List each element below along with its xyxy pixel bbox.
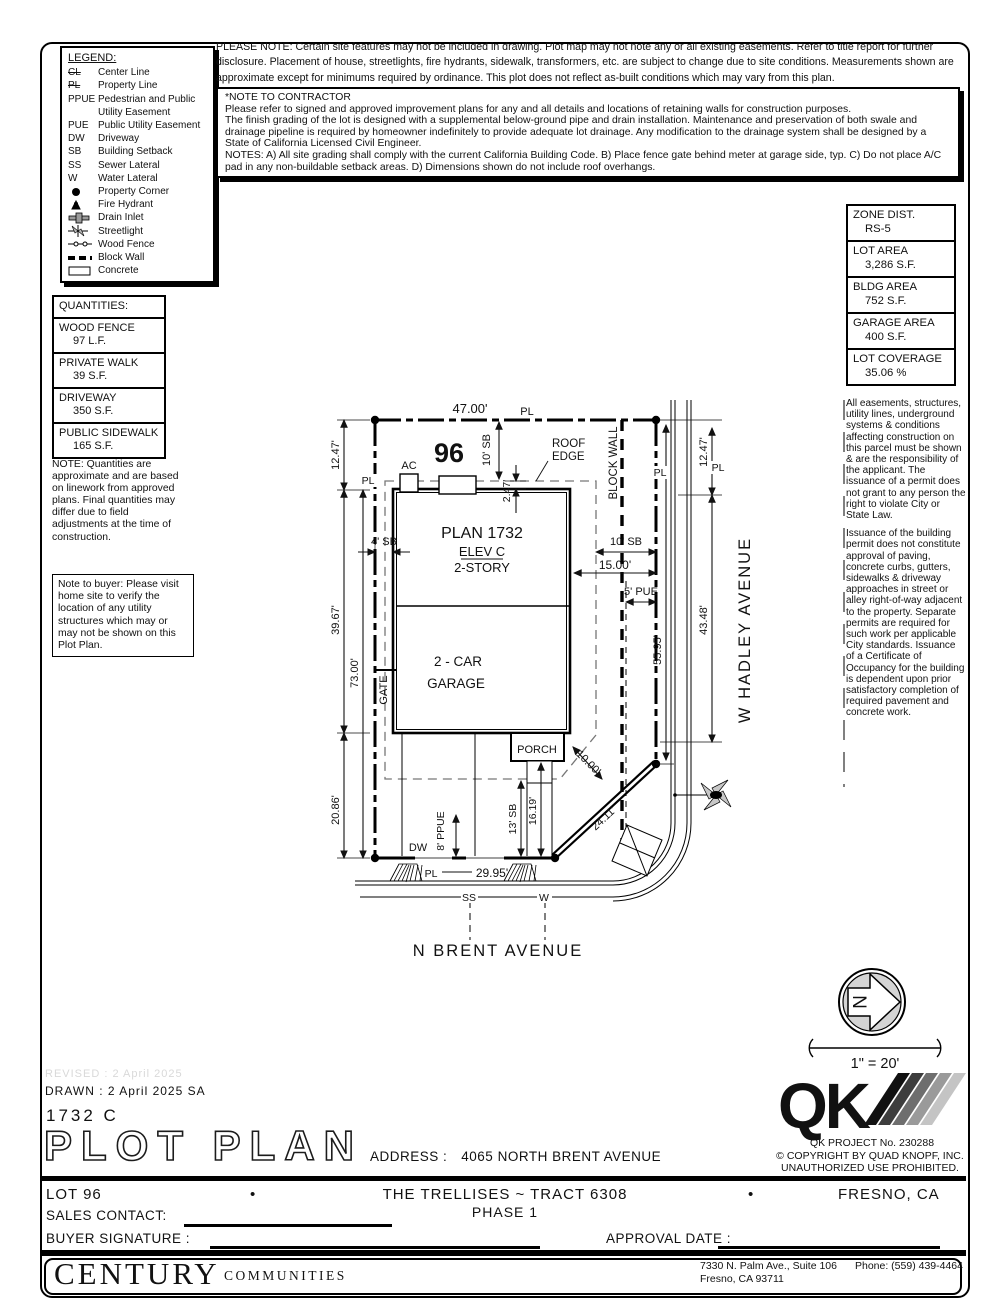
dim-right-5595: 55.95' [652, 635, 664, 665]
contractor-note-body1: Please refer to signed and approved impr… [225, 104, 951, 116]
legend-row: Block Wall [68, 251, 208, 264]
legend-row: CLCenter Line [68, 66, 208, 79]
lot-label: LOT 96 [46, 1186, 102, 1203]
drain-inlet-symbol [612, 825, 662, 876]
footer-address1: 7330 N. Palm Ave., Suite 106 [700, 1260, 837, 1272]
streetlight-symbol [673, 780, 731, 810]
lot-area-box: LOT AREA3,286 S.F. [846, 240, 956, 278]
roof-edge-label: ROOF [552, 438, 585, 450]
approval-date-label: APPROVAL DATE : [606, 1231, 731, 1246]
curb-ramp [504, 864, 536, 882]
propertyline-symbol: PL [68, 79, 98, 92]
quantities-table: QUANTITIES: WOOD FENCE97 L.F. PRIVATE WA… [52, 297, 166, 459]
scale-bar [809, 1039, 941, 1057]
buyer-signature-label: BUYER SIGNATURE : [46, 1231, 190, 1246]
sewer-lateral-label: SS [462, 892, 476, 904]
north-arrow: N 1" = 20' [804, 956, 946, 1074]
contractor-note-body2: The finish grading of the lot is designe… [225, 115, 951, 150]
legend-row: Wood Fence [68, 238, 208, 251]
quantity-row: PRIVATE WALK39 S.F. [52, 352, 166, 389]
dim-side-setback-left: 4' SB [371, 536, 397, 548]
legend-box: LEGEND: CLCenter Line PLProperty Line PP… [60, 46, 215, 283]
gate-label: GATE [378, 675, 390, 704]
dim-left-3967: 39.67' [330, 605, 342, 635]
dw-label: DW [409, 842, 428, 854]
dim-pue: 5' PUE [624, 586, 658, 598]
sheet-title: PLOT PLAN [44, 1122, 363, 1170]
revised-date: REVISED : 2 April 2025 [45, 1068, 183, 1080]
bldg-area-box: BLDG AREA752 S.F. [846, 276, 956, 314]
legend-row: Concrete [68, 264, 208, 277]
story-label: 2-STORY [454, 560, 510, 575]
zone-dist-box: ZONE DIST.RS-5 [846, 204, 956, 242]
dim-ppue: 8' PPUE [435, 811, 447, 850]
porch-label: PORCH [517, 744, 557, 756]
pl-label: PL [425, 868, 438, 880]
footer-address2: Fresno, CA 93711 [700, 1273, 981, 1286]
dim-left-73: 73.00' [349, 658, 361, 688]
contractor-note-box: *NOTE TO CONTRACTOR Please refer to sign… [216, 87, 960, 178]
legend-row: DWDriveway [68, 132, 208, 145]
north-letter: N [848, 995, 869, 1009]
block-wall-label: BLOCK WALL [608, 426, 620, 500]
qk-project-number: QK PROJECT No. 230288 [810, 1137, 934, 1149]
qk-stripes [864, 1073, 966, 1125]
centerline-symbol: CL [68, 66, 98, 79]
contractor-note-body3: NOTES: A) All site grading shall comply … [225, 150, 951, 173]
buyer-signature-line[interactable] [210, 1246, 540, 1249]
lot-coverage-box: LOT COVERAGE35.06 % [846, 348, 956, 386]
pl-label: PL [362, 475, 375, 487]
dim-lot-width: 47.00' [452, 401, 487, 416]
qk-unauthorized: UNAUTHORIZED USE PROHIBITED. [781, 1162, 959, 1174]
lot-number: 96 [434, 438, 464, 468]
pl-label: PL [520, 406, 533, 418]
separator-bullet: • [250, 1186, 256, 1203]
buyer-note-box: Note to buyer: Please visit home site to… [52, 574, 194, 657]
pl-label: PL [654, 467, 667, 479]
pl-label: PL [712, 462, 725, 474]
dim-left-2086: 20.86' [330, 795, 342, 825]
legend-row: PLProperty Line [68, 79, 208, 92]
footer-phone: Phone: (559) 439-4464 [855, 1260, 963, 1272]
qk-letters: QK [778, 1070, 871, 1142]
property-corner-icon [68, 185, 98, 198]
garage-label: 2 - CAR [434, 654, 482, 669]
legend-row: Drain Inlet [68, 211, 208, 224]
legend-row: PUEPublic Utility Easement [68, 119, 208, 132]
garage-area-box: GARAGE AREA400 S.F. [846, 312, 956, 350]
wood-fence-icon [68, 238, 98, 251]
separator-bullet: • [748, 1186, 754, 1203]
community-label: THE TRELLISES ~ TRACT 6308 [320, 1186, 690, 1203]
street-name-brent: N BRENT AVENUE [413, 942, 583, 960]
approval-date-line[interactable] [718, 1246, 940, 1249]
drain-inlet-icon [68, 211, 98, 224]
dim-left-1247: 12.47' [330, 440, 342, 470]
streetlight-icon [68, 225, 98, 238]
please-note-text: PLEASE NOTE: Certain site features may n… [216, 40, 958, 86]
quantity-row: DRIVEWAY350 S.F. [52, 387, 166, 424]
fire-hydrant-icon [68, 198, 98, 211]
address-line: ADDRESS :4065 NORTH BRENT AVENUE [370, 1149, 675, 1164]
easements-note: All easements, structures, utility lines… [846, 398, 966, 726]
bay-window [439, 476, 476, 494]
sales-contact-label: SALES CONTACT: [46, 1208, 167, 1223]
dim-right-4348: 43.48' [698, 605, 710, 635]
porch-steps [527, 761, 552, 783]
divider-bar [40, 1176, 966, 1181]
address-label: ADDRESS : [370, 1149, 447, 1164]
legend-row: Property Corner [68, 185, 208, 198]
legend-row: SBBuilding Setback [68, 145, 208, 158]
dim-15: 15.00' [599, 558, 631, 572]
dim-1619: 16.19' [527, 797, 539, 825]
curb-ramp [390, 864, 422, 882]
drawn-date: DRAWN : 2 April 2025 SA [45, 1084, 206, 1098]
elev-label: ELEV C [459, 544, 505, 559]
plot-plan-page: LEGEND: CLCenter Line PLProperty Line PP… [0, 0, 1006, 1309]
builder-logo-communities: COMMUNITIES [224, 1268, 347, 1284]
water-lateral-label: W [539, 892, 549, 904]
zoning-summary: ZONE DIST.RS-5 LOT AREA3,286 S.F. BLDG A… [846, 206, 956, 386]
ac-pad [400, 474, 418, 492]
garage-label: GARAGE [427, 676, 485, 691]
legend-row: Fire Hydrant [68, 198, 208, 211]
ac-label: AC [401, 460, 416, 472]
city-label: FRESNO, CA [838, 1186, 940, 1203]
legend-row: WWater Lateral [68, 172, 208, 185]
qk-copyright: © COPYRIGHT BY QUAD KNOPF, INC. [776, 1150, 964, 1162]
street-name-hadley: W HADLEY AVENUE [736, 537, 754, 723]
quantity-row: WOOD FENCE97 L.F. [52, 317, 166, 354]
quantities-title: QUANTITIES: [52, 295, 166, 319]
legend-title: LEGEND: [68, 52, 208, 65]
qk-logo: QK QK PROJECT No. 230288 © COPYRIGHT BY … [776, 1070, 966, 1180]
quantities-note: NOTE: Quantities are approximate and are… [52, 459, 184, 544]
dim-right-1247: 12.47' [698, 437, 710, 467]
dim-2411: 24.11' [589, 805, 618, 833]
phase-label: PHASE 1 [320, 1204, 690, 1220]
address-value: 4065 NORTH BRENT AVENUE [461, 1149, 661, 1164]
legend-row: PPUEPedestrian and Public Utility Easeme… [68, 93, 208, 119]
legend-row: SSSewer Lateral [68, 159, 208, 172]
plan-label: PLAN 1732 [441, 525, 523, 542]
dim-rear-setback: 13' SB [507, 804, 519, 835]
legend-row: Streetlight [68, 225, 208, 238]
easements-paragraph-1: All easements, structures, utility lines… [846, 398, 966, 521]
quantity-row: PUBLIC SIDEWALK165 S.F. [52, 422, 166, 459]
easements-paragraph-2: Issuance of the building permit does not… [846, 528, 966, 718]
builder-logo-century: CENTURY [54, 1256, 220, 1292]
footer-contact: 7330 N. Palm Ave., Suite 106Phone: (559)… [700, 1260, 981, 1286]
dim-front-setback: 10' SB [481, 434, 493, 466]
block-wall-icon [68, 251, 98, 264]
sales-contact-line[interactable] [184, 1224, 392, 1227]
dim-2995: 29.95' [476, 866, 508, 880]
dim-10: 10.00' [573, 748, 602, 777]
dim-roof-offset: 2.47' [501, 480, 513, 502]
roof-edge-label: EDGE [552, 451, 585, 463]
contractor-note-title: *NOTE TO CONTRACTOR [225, 92, 951, 104]
site-plan-drawing: 47.00' PL 96 AC ROOF EDGE 10' SB 2.47' B… [330, 395, 850, 983]
concrete-icon [68, 264, 98, 277]
dim-side-setback-right: 10' SB [610, 536, 642, 548]
